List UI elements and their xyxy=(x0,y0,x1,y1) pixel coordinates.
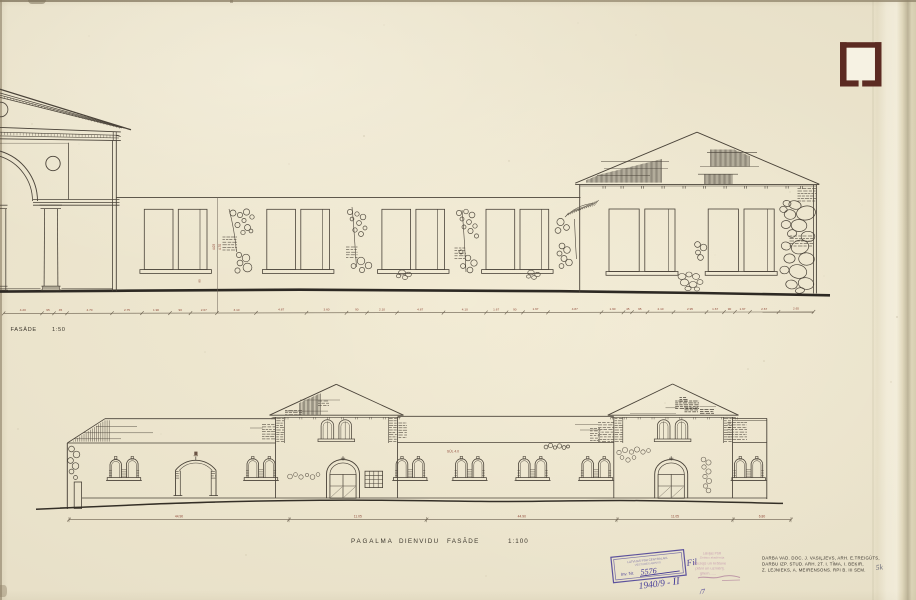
svg-text:44.90: 44.90 xyxy=(518,514,526,518)
svg-text:FASĀDE: FASĀDE xyxy=(447,537,480,545)
svg-text:FASĀDE: FASĀDE xyxy=(11,326,37,333)
svg-text:4.70: 4.70 xyxy=(218,244,222,250)
svg-text:11.05: 11.05 xyxy=(354,514,362,518)
svg-text:gliem......: gliem...... xyxy=(700,571,716,576)
svg-text:Z. LEJNIEKS, A. MEIRENSONS.: Z. LEJNIEKS, A. MEIRENSONS. RPI B. III S… xyxy=(762,568,866,573)
svg-text:90: 90 xyxy=(198,279,202,283)
svg-text:90: 90 xyxy=(355,308,359,312)
svg-text:1:50: 1:50 xyxy=(52,327,65,333)
svg-text:5k: 5k xyxy=(875,562,884,572)
svg-text:1:100: 1:100 xyxy=(508,538,529,545)
svg-text:2.75: 2.75 xyxy=(124,308,130,312)
svg-text:3.60: 3.60 xyxy=(323,308,329,312)
svg-text:1.67: 1.67 xyxy=(532,307,538,311)
svg-text:4.87: 4.87 xyxy=(278,308,284,312)
svg-text:4.05: 4.05 xyxy=(212,244,216,250)
svg-text:2.67: 2.67 xyxy=(761,307,767,311)
svg-text:3.10: 3.10 xyxy=(233,308,239,312)
svg-text:1.67: 1.67 xyxy=(739,307,745,311)
svg-text:1.67: 1.67 xyxy=(493,307,499,311)
svg-text:95: 95 xyxy=(46,308,50,312)
svg-text:44.90: 44.90 xyxy=(175,514,183,518)
svg-text:11.05: 11.05 xyxy=(671,514,679,518)
svg-text:45: 45 xyxy=(626,307,630,311)
svg-text:6.80: 6.80 xyxy=(759,514,766,518)
svg-text:2.10: 2.10 xyxy=(657,307,663,311)
svg-text:1.90: 1.90 xyxy=(609,307,615,311)
svg-text:1.67: 1.67 xyxy=(712,307,718,311)
svg-text:95: 95 xyxy=(638,307,642,311)
svg-text:2.67: 2.67 xyxy=(201,308,207,312)
svg-text:1.90: 1.90 xyxy=(153,308,159,312)
svg-text:Zinātņu akadēmija: Zinātņu akadēmija xyxy=(700,555,725,559)
svg-text:4.20: 4.20 xyxy=(20,308,26,312)
svg-text:90: 90 xyxy=(178,308,182,312)
svg-text:2.95: 2.95 xyxy=(687,307,693,311)
svg-text:DARBA VAD. DOC. J. VASIĻJEV: DARBA VAD. DOC. J. VASIĻJEVS, ARH. E.TRE… xyxy=(762,556,880,561)
svg-text:PAGALMA: PAGALMA xyxy=(351,538,394,545)
svg-text:DARBU IZP. STUD. ARH. 2T.: DARBU IZP. STUD. ARH. 2T. I. TĪMA, I. BE… xyxy=(762,562,864,567)
svg-text:90: 90 xyxy=(728,307,732,311)
svg-text:2.10: 2.10 xyxy=(379,308,385,312)
svg-text:DIENVIDU: DIENVIDU xyxy=(399,538,440,545)
svg-text:90: 90 xyxy=(513,307,517,311)
svg-text:4.70: 4.70 xyxy=(86,308,92,312)
svg-text:4.87: 4.87 xyxy=(572,307,578,311)
svg-text:SŪL 4.0: SŪL 4.0 xyxy=(447,450,459,454)
svg-text:4.87: 4.87 xyxy=(417,307,423,311)
svg-text:Inv. Nr.: Inv. Nr. xyxy=(620,570,634,576)
svg-text:4.10: 4.10 xyxy=(462,307,468,311)
svg-text:45: 45 xyxy=(59,308,63,312)
svg-text:/7: /7 xyxy=(698,587,706,596)
svg-text:2.65: 2.65 xyxy=(793,307,799,311)
